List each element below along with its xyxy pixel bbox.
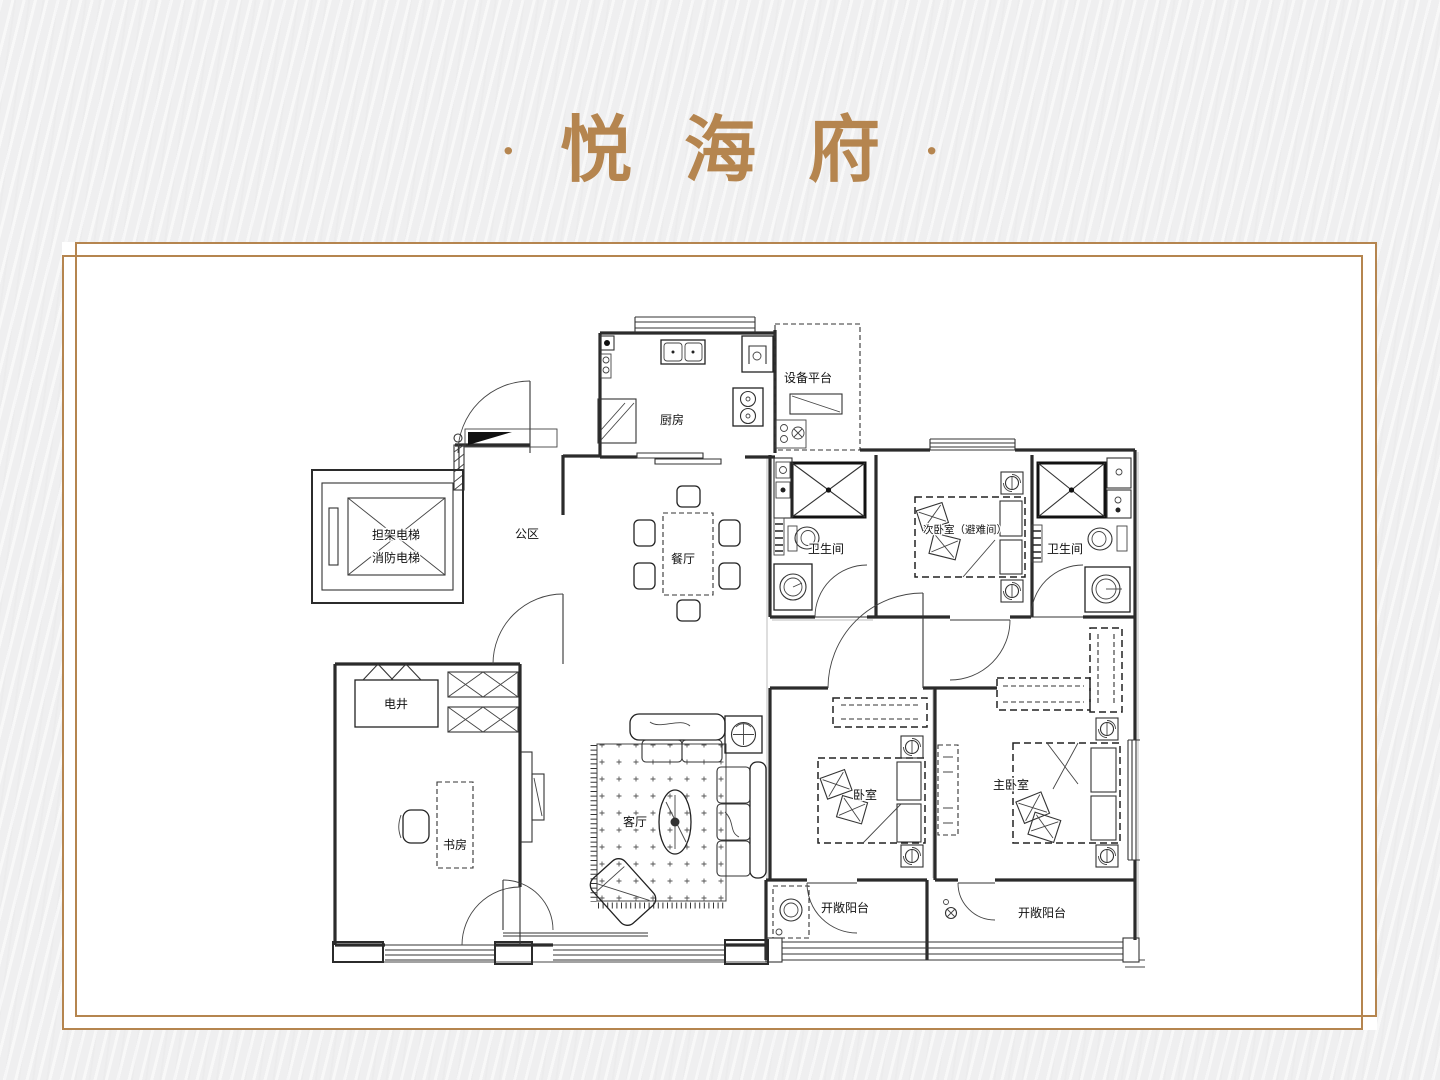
room-label-balcony2: 开敞阳台 [1018, 905, 1066, 920]
floor-plan: 担架电梯 消防电梯 电井 厨房 设备平台 [305, 312, 1145, 972]
title-right-dot: · [924, 128, 939, 174]
balcony-2: 开敞阳台 [944, 900, 1067, 921]
room-label-elevator-1: 担架电梯 [372, 528, 420, 542]
living-room: 客厅 [521, 714, 766, 929]
room-label-bedroom2: 次卧室（避难间） [923, 523, 1007, 536]
study: 书房 [399, 782, 473, 868]
bathroom-1: 卫生间 [774, 458, 865, 610]
electric-shaft: 电井 [355, 664, 438, 727]
room-label-living: 客厅 [623, 814, 647, 829]
page-background: { "header": { "decor_dot": "·", "title":… [0, 0, 1440, 1080]
balcony-1: 开敞阳台 [773, 886, 869, 938]
room-label-equipment-platform: 设备平台 [784, 370, 832, 385]
room-label-bath2: 卫生间 [1047, 542, 1083, 556]
walls [333, 330, 1135, 962]
room-label-shaft: 电井 [384, 697, 408, 711]
equipment-platform: 设备平台 [775, 324, 860, 450]
title-text: 悦海府 [560, 115, 932, 187]
room-label-master: 主卧室 [993, 777, 1029, 792]
bedroom-1: 卧室 [818, 698, 958, 867]
room-label-study: 书房 [443, 837, 467, 852]
room-label-bath1: 卫生间 [808, 542, 844, 556]
room-label-bedroom1: 卧室 [853, 787, 877, 802]
hall-wardrobe [997, 628, 1122, 712]
room-label-public-area: 公区 [515, 527, 539, 541]
dining-set: 餐厅 [634, 486, 740, 621]
elevator: 担架电梯 消防电梯 [312, 445, 463, 603]
bedroom-2: 次卧室（避难间） [915, 472, 1025, 602]
room-label-dining: 餐厅 [671, 551, 695, 566]
master-bedroom: 主卧室 [993, 718, 1120, 867]
entry-closet [448, 672, 518, 732]
room-label-elevator-2: 消防电梯 [372, 550, 420, 565]
bathroom-2: 卫生间 [1032, 458, 1131, 612]
page-title: · 悦海府 · [0, 96, 1440, 206]
windows [333, 317, 1145, 967]
kitchen-fixtures: 厨房 [598, 336, 773, 443]
room-label-balcony1: 开敞阳台 [821, 900, 869, 915]
title-left-dot: · [501, 128, 516, 174]
room-label-kitchen: 厨房 [660, 412, 684, 427]
